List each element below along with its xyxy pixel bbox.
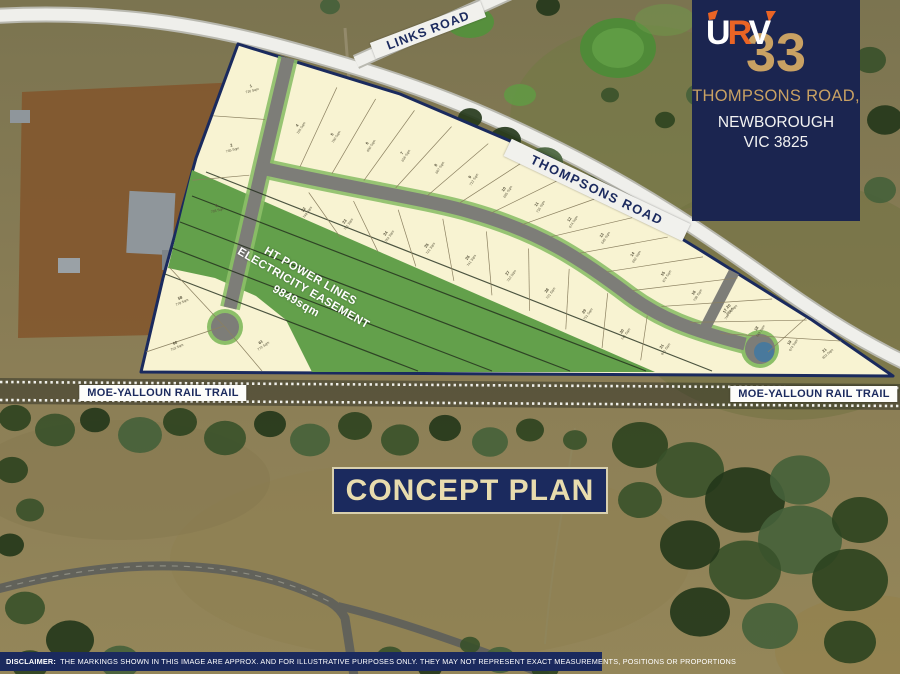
tree-clump bbox=[35, 414, 75, 447]
tree-clump bbox=[832, 497, 888, 543]
address-state-postcode: VIC 3825 bbox=[692, 134, 860, 152]
tree-clump bbox=[660, 520, 720, 569]
retention-pond bbox=[754, 342, 774, 362]
tree-clump bbox=[0, 405, 31, 431]
disclaimer-text: THE MARKINGS SHOWN IN THIS IMAGE ARE APP… bbox=[58, 657, 736, 666]
tree-clump bbox=[381, 424, 419, 455]
svg-text:URV: URV bbox=[706, 14, 772, 52]
tree-clump bbox=[655, 112, 675, 128]
tree-clump bbox=[472, 427, 508, 457]
info-panel: URV 33 THOMPSONS ROAD, NEWBOROUGH VIC 38… bbox=[692, 0, 860, 221]
concept-plan-title-box: CONCEPT PLAN bbox=[332, 467, 608, 514]
tree-clump bbox=[601, 88, 619, 103]
tree-clump bbox=[16, 499, 44, 522]
tree-clump bbox=[812, 549, 888, 611]
tree-clump bbox=[5, 592, 45, 625]
disclaimer-label: DISCLAIMER: bbox=[6, 657, 56, 666]
tree-clump bbox=[516, 419, 544, 442]
rail-trail-label-left: MOE-YALLOUN RAIL TRAIL bbox=[79, 385, 246, 401]
tree-clump bbox=[290, 424, 330, 457]
address-suburb: NEWBOROUGH bbox=[692, 114, 860, 132]
tree-clump bbox=[460, 637, 480, 653]
tree-clump bbox=[670, 587, 730, 636]
tree-clump bbox=[563, 430, 587, 450]
tree-clump bbox=[770, 455, 830, 504]
tree-clump bbox=[709, 540, 781, 599]
tree-clump bbox=[118, 417, 162, 453]
tree-clump bbox=[429, 415, 461, 441]
tree-clump bbox=[254, 411, 286, 437]
tree-clump bbox=[338, 412, 372, 440]
tree-clump bbox=[742, 603, 798, 649]
tree-clump bbox=[80, 408, 110, 433]
disclaimer-bar: DISCLAIMER: THE MARKINGS SHOWN IN THIS I… bbox=[0, 652, 602, 671]
tree-clump bbox=[163, 408, 197, 436]
page-title: CONCEPT PLAN bbox=[346, 474, 595, 508]
tree-clump bbox=[824, 621, 876, 664]
address-road: THOMPSONS ROAD, bbox=[692, 87, 860, 106]
tree-clump bbox=[204, 421, 246, 455]
tree-clump bbox=[864, 177, 896, 203]
tree-clump bbox=[618, 482, 662, 518]
urv-logo-icon: URV bbox=[692, 10, 788, 52]
concept-plan-flyer: 4705 Sqm5700 Sqm6650 Sqm7656 Sqm8667 Sqm… bbox=[0, 0, 900, 674]
rail-trail-label-right: MOE-YALLOUN RAIL TRAIL bbox=[730, 386, 897, 402]
